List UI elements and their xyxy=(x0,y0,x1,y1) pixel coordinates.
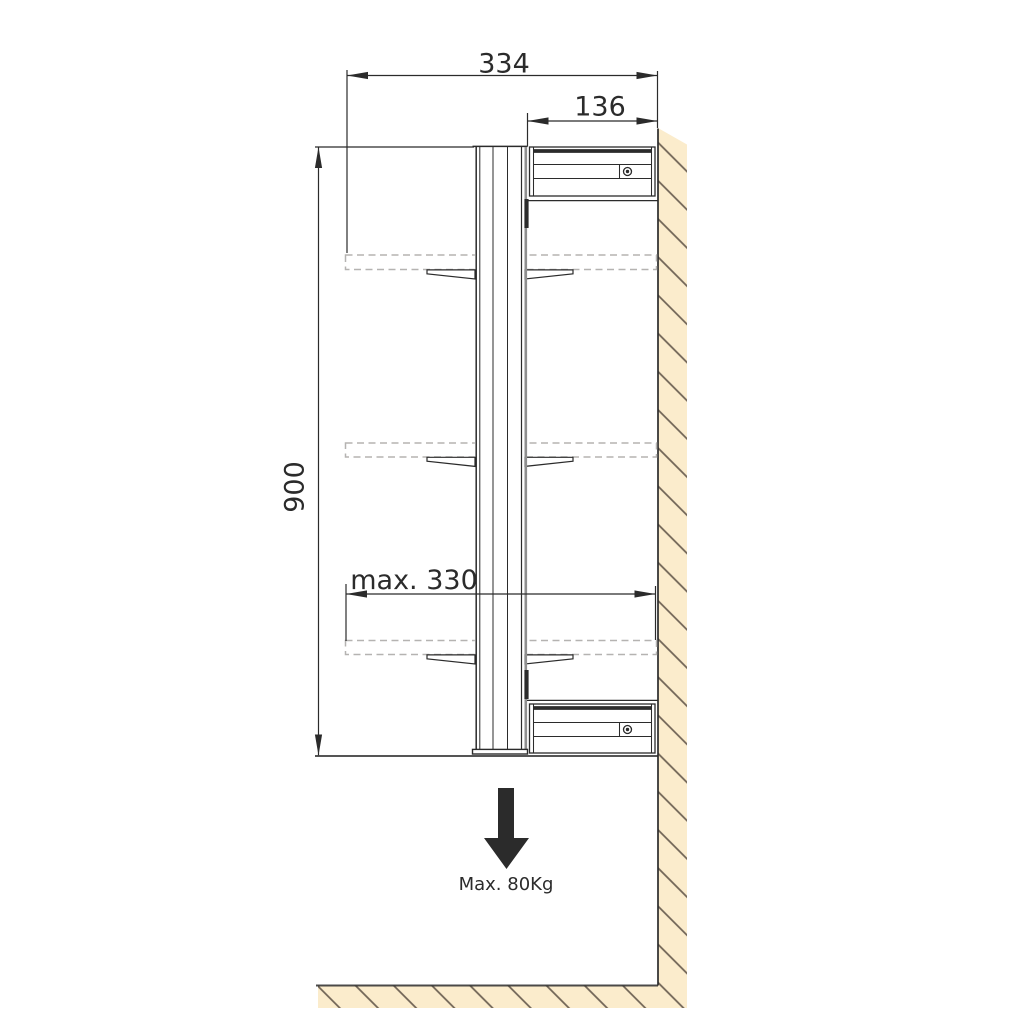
bracket-arm-right-top xyxy=(525,270,573,279)
arrow-up-icon xyxy=(315,147,322,168)
bracket-arm-left-middle xyxy=(427,457,475,466)
bracket-arm-right-middle xyxy=(525,457,573,466)
rail-tab-bottom xyxy=(524,670,528,699)
arrow-right-icon xyxy=(635,590,656,597)
dim-136-label: 136 xyxy=(574,92,626,123)
load-label: Max. 80Kg xyxy=(459,874,554,895)
arrow-right-icon xyxy=(637,72,658,79)
dim-334-label: 334 xyxy=(478,49,530,80)
top-wall-bracket xyxy=(527,147,658,201)
bracket-arm-right-bottom xyxy=(525,655,573,664)
arrow-left-icon xyxy=(528,117,549,124)
rail-tab-top xyxy=(524,199,528,228)
down-arrow-icon xyxy=(484,788,529,869)
bracket-arm-left-top xyxy=(427,270,475,279)
dimension-136: 136 xyxy=(528,92,658,147)
load-indicator: Max. 80Kg xyxy=(459,788,554,895)
post-body xyxy=(475,147,525,750)
shelving-section-diagram: 334 136 900 max. 330 Max. 80Kg xyxy=(0,0,1024,1024)
arrow-down-icon xyxy=(315,735,322,756)
bottom-wall-bracket xyxy=(527,700,658,753)
arrow-left-icon xyxy=(347,72,368,79)
bracket-arm-left-bottom xyxy=(427,655,475,664)
technical-drawing-page: 334 136 900 max. 330 Max. 80Kg xyxy=(0,0,1024,1024)
dim-900-label: 900 xyxy=(280,461,311,513)
arrow-right-icon xyxy=(637,117,658,124)
mounting-post xyxy=(473,146,528,749)
post-bottom-cap xyxy=(473,749,528,754)
dimension-900: 900 xyxy=(280,147,475,756)
dim-max330-label: max. 330 xyxy=(350,565,478,596)
